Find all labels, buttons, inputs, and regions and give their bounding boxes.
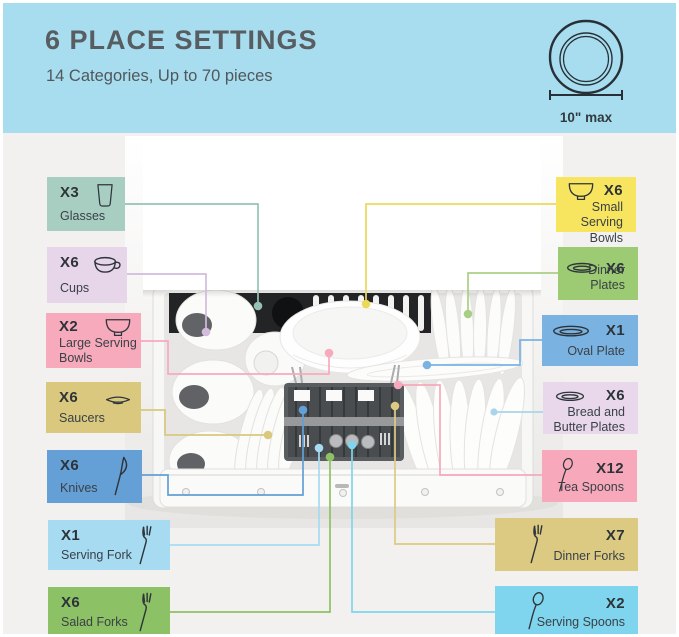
bowl-icon [568,182,594,202]
card-serving-fork: X1 Serving Fork [48,520,170,570]
item-label: Salad Forks [61,615,168,630]
count: X6 [60,254,79,271]
card-large-serving-bowls: X2 Large Serving Bowls [46,313,141,368]
count: X6 [60,457,79,474]
item-label: Cups [60,281,125,296]
item-label: Tea Spoons [544,480,624,495]
count: X1 [61,527,80,544]
glass-icon [95,183,115,209]
count: X6 [61,594,80,611]
bowl-icon [105,318,131,338]
card-serving-spoons: X2 Serving Spoons [495,586,638,637]
card-cups: X6 Cups [47,247,127,303]
infographic: 6 PLACE SETTINGS 14 Categories, Up to 70… [0,0,679,637]
count: X1 [606,322,625,339]
oval-plate-icon [552,325,590,338]
item-label: Saucers [59,411,139,426]
card-tea-spoons: X12 Tea Spoons [542,450,637,502]
saucer-icon [105,395,131,406]
count: X2 [606,595,625,612]
card-oval-plate: X1 Oval Plate [542,315,638,366]
item-label: Dinner Plates [560,263,625,294]
count: X7 [606,527,625,544]
card-dinner-plates: X6 Dinner Plates [558,247,638,300]
card-bread-and-butter-plates: X6 Bread and Butter Plates [543,382,638,434]
card-salad-forks: X6 Salad Forks [48,587,170,637]
card-saucers: X6 Saucers [46,382,141,433]
card-small-serving-bowls: X6 Small Serving Bowls [556,177,636,232]
item-label: Oval Plate [544,344,625,359]
count: X6 [606,387,625,404]
count: X2 [59,318,78,335]
card-dinner-forks: X7 Dinner Forks [495,518,638,571]
plate-icon [555,391,585,402]
item-label: Large Serving Bowls [59,336,139,367]
item-label: Knives [60,481,140,496]
count: X6 [59,389,78,406]
item-label: Glasses [60,209,123,224]
item-label: Bread and Butter Plates [545,405,625,436]
count: X6 [604,182,623,199]
item-label: Dinner Forks [497,549,625,564]
item-label: Serving Fork [61,548,168,563]
card-glasses: X3 Glasses [47,177,125,231]
item-label: Small Serving Bowls [558,200,623,246]
cup-icon [93,256,121,277]
item-label: Serving Spoons [497,615,625,630]
count: X3 [60,184,79,201]
card-knives: X6 Knives [47,450,142,503]
packaging-cover [143,140,541,290]
count: X12 [596,460,624,477]
